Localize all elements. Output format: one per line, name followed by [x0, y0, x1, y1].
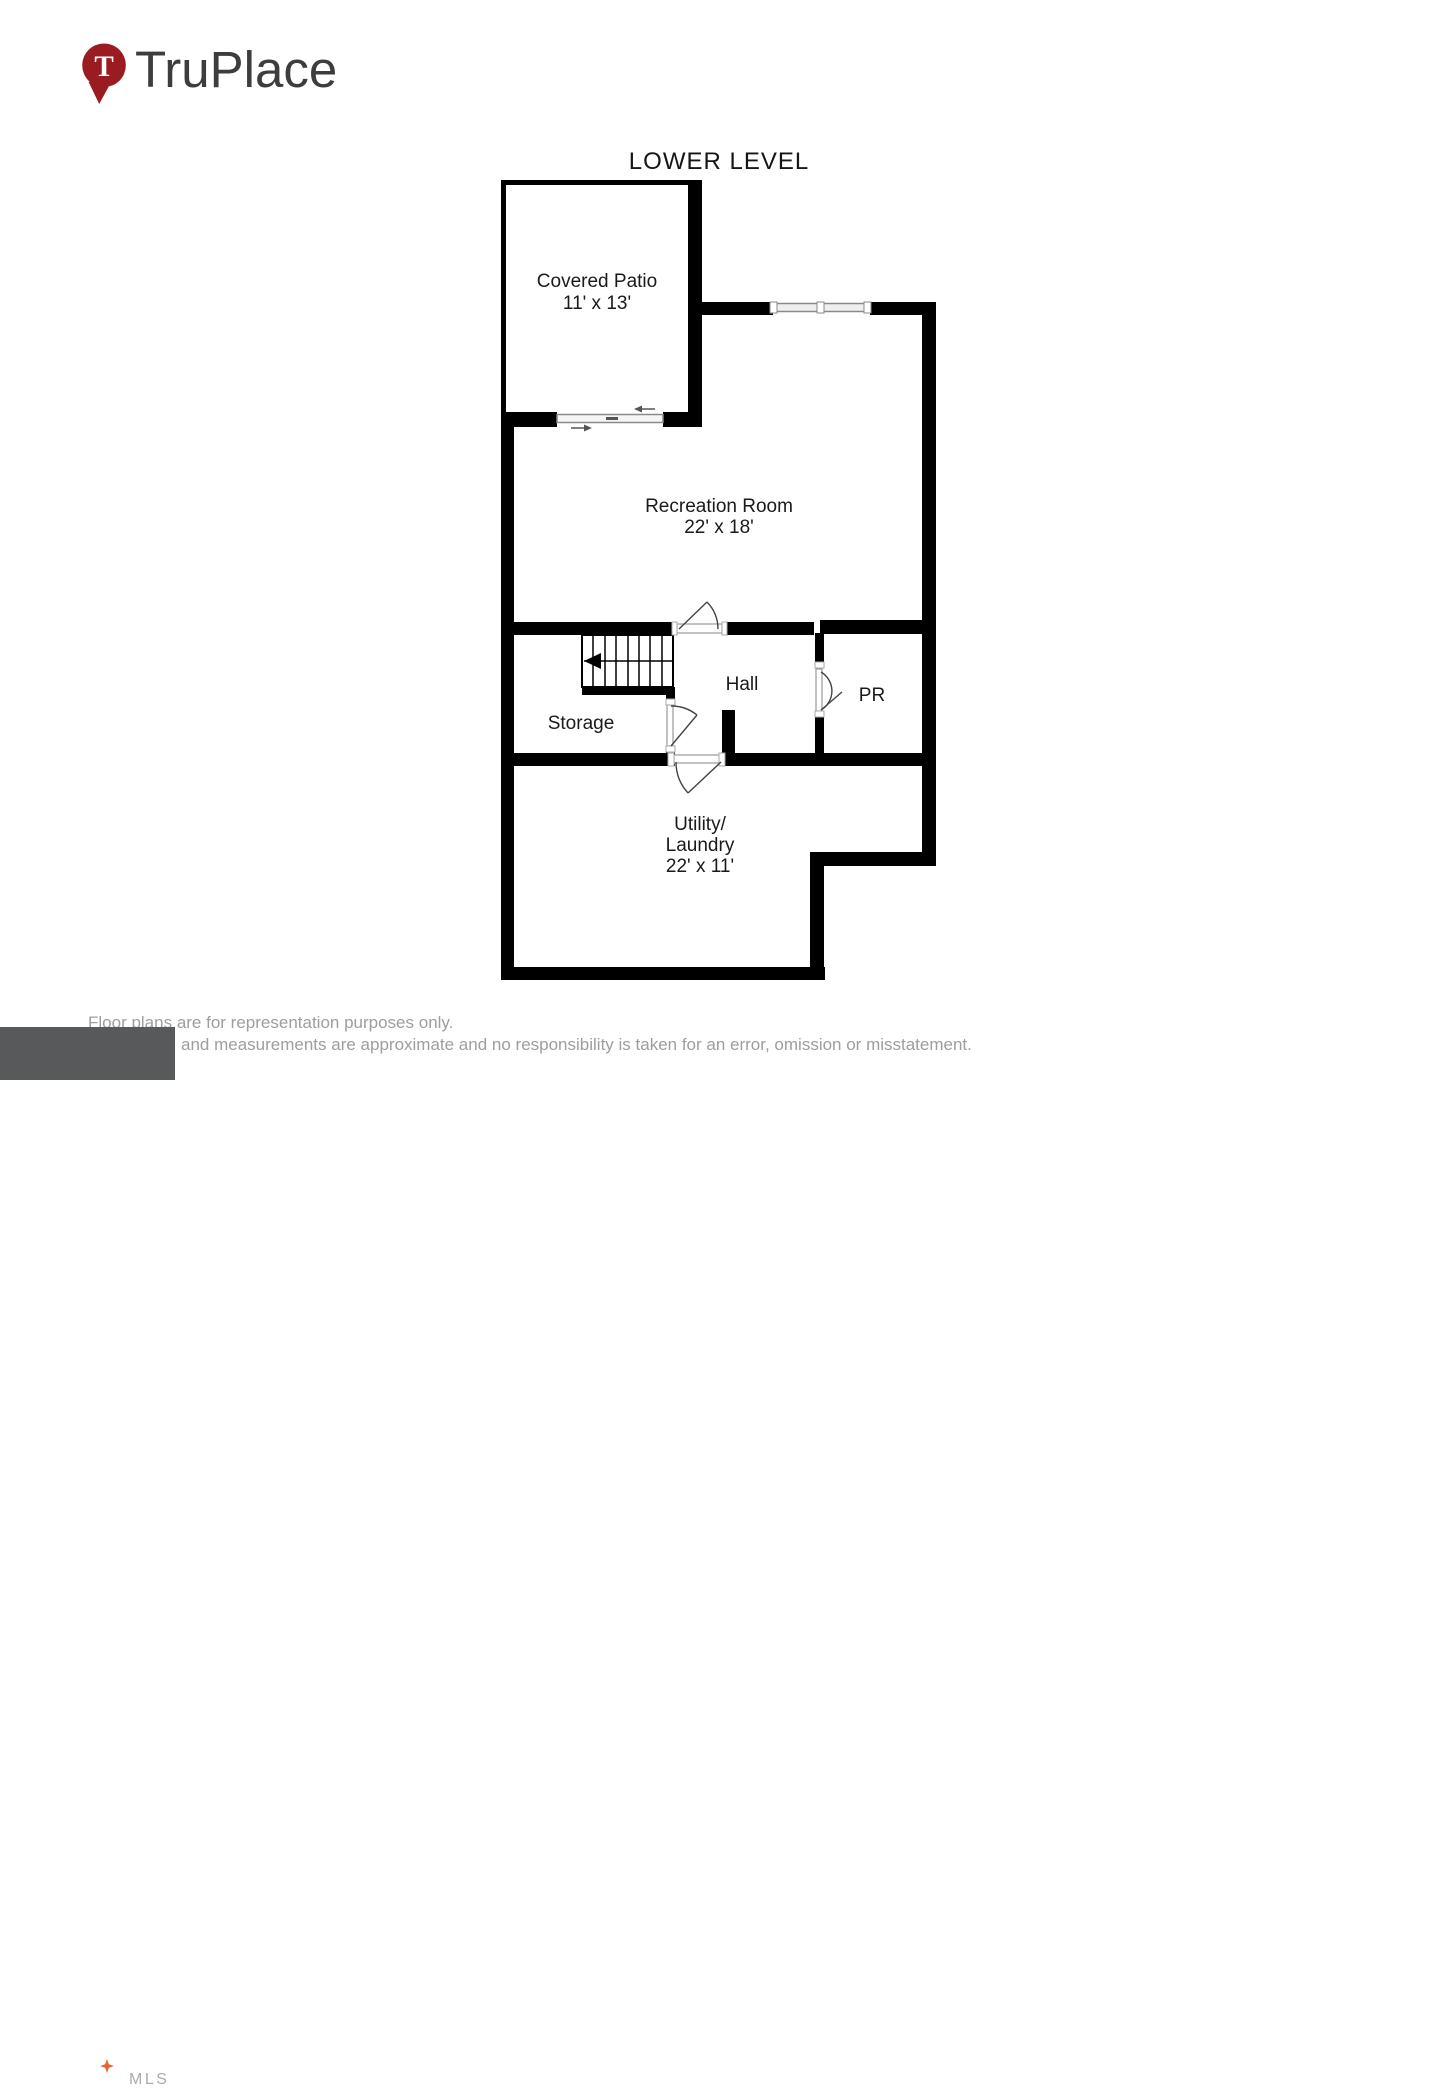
room-dims-covered-patio: 11' x 13' — [563, 293, 631, 314]
door-hinge — [815, 662, 824, 668]
door-hinge — [668, 753, 674, 766]
door-threshold — [674, 755, 720, 763]
door-swing-arc — [671, 706, 697, 715]
door-hinge — [666, 746, 675, 752]
room-label-utility-line1: Utility/ — [674, 814, 726, 835]
bright-wordmark: bright — [15, 2058, 83, 2092]
sliding-door — [557, 406, 663, 432]
bright-mls-logo: bright ™ MLS — [0, 1027, 175, 1080]
door-leaf — [671, 715, 697, 746]
door-hinge — [815, 711, 824, 717]
door-leaf — [688, 762, 721, 793]
door-threshold — [816, 669, 822, 711]
room-label-pr: PR — [859, 685, 885, 706]
door-hinge — [666, 699, 675, 705]
disclaimer-line-2: and measurements are approximate and no … — [181, 1036, 972, 1053]
slider-arrow-left-icon — [634, 406, 655, 413]
plan-labels: LOWER LEVEL Covered Patio 11' x 13' Recr… — [537, 148, 885, 877]
door-storage-to-hall — [666, 699, 697, 752]
window-mullion — [864, 302, 871, 313]
slider-arrow-right-icon — [571, 425, 592, 432]
door-hall-to-pr — [815, 662, 842, 717]
room-label-recreation: Recreation Room — [645, 496, 793, 517]
plan-title: LOWER LEVEL — [629, 148, 809, 175]
door-threshold — [667, 705, 673, 746]
window — [770, 302, 871, 313]
door-hall-to-utility — [668, 753, 725, 793]
window-mullion — [770, 302, 777, 313]
room-dims-recreation: 22' x 18' — [684, 517, 754, 538]
room-label-storage: Storage — [548, 713, 615, 734]
door-swing-arc — [676, 762, 688, 793]
room-label-covered-patio: Covered Patio — [537, 271, 657, 292]
door-hinge — [722, 622, 727, 635]
door-hinge — [719, 753, 725, 766]
trademark-symbol: ™ — [116, 2057, 125, 2067]
window-mullion — [817, 302, 824, 313]
room-label-hall: Hall — [726, 674, 759, 695]
door-swing-arc — [821, 672, 832, 710]
staircase — [582, 635, 673, 687]
door-hinge — [672, 622, 677, 635]
room-label-utility-line2: Laundry — [666, 835, 735, 856]
floor-plan: LOWER LEVEL Covered Patio 11' x 13' Recr… — [0, 0, 1440, 1080]
star-icon — [100, 2059, 114, 2073]
mls-suffix: MLS — [129, 2072, 169, 2088]
door-rec-to-hall — [672, 602, 727, 635]
room-dims-utility: 22' x 11' — [666, 856, 734, 877]
